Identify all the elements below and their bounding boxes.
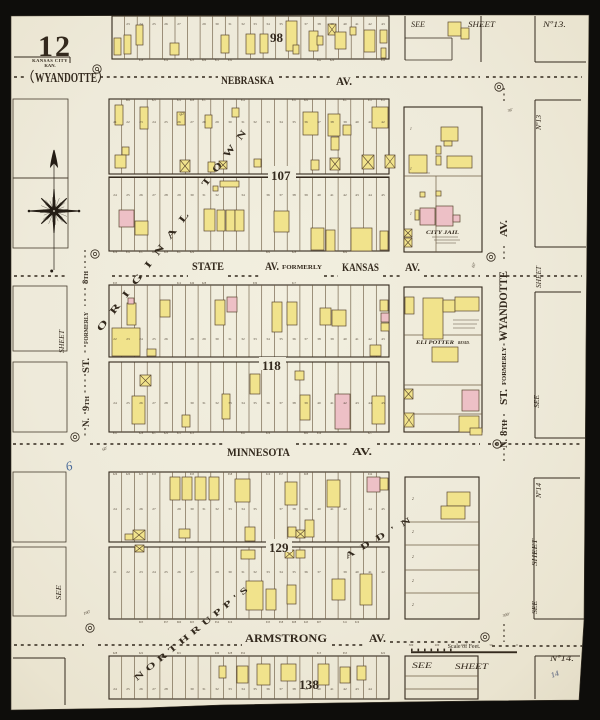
svg-text:612: 612 [215,59,220,62]
svg-text:39: 39 [330,22,334,26]
svg-text:616: 616 [113,251,118,254]
svg-text:23: 23 [139,570,143,574]
svg-text:32: 32 [215,687,219,691]
svg-text:607: 607 [152,432,157,435]
svg-text:41: 41 [330,401,334,405]
svg-text:21: 21 [113,570,117,574]
svg-text:27: 27 [152,401,156,405]
svg-text:42: 42 [343,507,347,511]
svg-text:638: 638 [139,59,144,62]
svg-text:33: 33 [228,687,232,691]
svg-text:35: 35 [279,22,283,26]
svg-text:FORMERLY: FORMERLY [84,311,90,344]
svg-text:WYANDOTTE: WYANDOTTE [35,71,97,86]
svg-text:35: 35 [279,337,283,341]
svg-text:41: 41 [330,507,334,511]
svg-text:28: 28 [164,687,168,691]
svg-text:33: 33 [253,22,257,26]
svg-text:32: 32 [215,193,219,197]
svg-text:38: 38 [317,337,321,341]
svg-text:26: 26 [177,570,181,574]
svg-text:637: 637 [202,99,207,102]
svg-text:24: 24 [113,507,117,511]
svg-text:616: 616 [228,621,233,624]
svg-text:657: 657 [279,473,284,476]
svg-text:37: 37 [317,570,321,574]
svg-text:35: 35 [253,401,257,405]
svg-text:660: 660 [126,99,131,102]
svg-text:606: 606 [202,59,207,62]
svg-text:32: 32 [253,570,257,574]
svg-text:610: 610 [177,99,182,102]
svg-text:642: 642 [317,59,322,62]
svg-text:628: 628 [139,432,144,435]
svg-text:FORMERLY: FORMERLY [282,264,322,271]
svg-text:AV.: AV. [369,631,386,645]
svg-text:21: 21 [113,120,117,124]
svg-text:AV.: AV. [352,446,372,458]
svg-text:623: 623 [190,59,195,62]
svg-text:28: 28 [164,401,168,405]
svg-text:24: 24 [113,401,117,405]
svg-text:44: 44 [368,193,372,197]
svg-text:39: 39 [304,507,308,511]
svg-text:608: 608 [292,621,297,624]
svg-text:34: 34 [241,401,245,405]
svg-text:608: 608 [304,473,309,476]
svg-text:30: 30 [190,193,194,197]
svg-text:31: 31 [241,570,245,574]
svg-text:612: 612 [177,282,182,285]
svg-text:41: 41 [368,570,372,574]
svg-text:SHEET: SHEET [534,265,543,288]
svg-text:31: 31 [202,507,206,511]
svg-text:622: 622 [381,652,386,655]
svg-text:2: 2 [412,497,414,501]
svg-text:25: 25 [126,687,130,691]
svg-text:SHEET: SHEET [57,329,66,353]
svg-text:43: 43 [355,687,359,691]
svg-text:617: 617 [292,282,297,285]
svg-text:630: 630 [215,652,220,655]
svg-text:ELI POTTER: ELI POTTER [415,341,455,346]
svg-text:100: 100 [461,643,466,647]
svg-text:40: 40 [317,507,321,511]
svg-text:27: 27 [152,193,156,197]
svg-text:AV.: AV. [265,259,279,273]
svg-text:25: 25 [152,22,156,26]
svg-text:650: 650 [381,59,386,62]
svg-text:615: 615 [177,432,182,435]
svg-text:42: 42 [343,401,347,405]
svg-text:40: 40 [355,120,359,124]
svg-text:27: 27 [152,507,156,511]
svg-text:36: 36 [304,570,308,574]
svg-text:SEE: SEE [54,585,63,600]
svg-text:626: 626 [113,473,118,476]
svg-text:40: 40 [355,570,359,574]
svg-text:645: 645 [241,432,246,435]
svg-text:44: 44 [368,687,372,691]
svg-text:31: 31 [228,337,232,341]
svg-text:24: 24 [113,687,117,691]
svg-text:633: 633 [190,473,195,476]
svg-text:SEE: SEE [412,660,433,670]
svg-text:STATE: STATE [192,259,224,273]
svg-text:2: 2 [412,555,414,559]
svg-text:KAN.: KAN. [44,63,55,68]
svg-text:36: 36 [266,193,270,197]
svg-text:26: 26 [139,401,143,405]
svg-text:26: 26 [177,120,181,124]
svg-text:635: 635 [152,473,157,476]
svg-text:623: 623 [139,473,144,476]
svg-text:29: 29 [177,507,181,511]
svg-text:611: 611 [343,621,348,624]
svg-text:23: 23 [126,337,130,341]
svg-text:620: 620 [164,432,169,435]
svg-text:ARMSTRONG: ARMSTRONG [245,631,327,645]
svg-text:30: 30 [190,687,194,691]
svg-text:40: 40 [317,401,321,405]
svg-text:30: 30 [190,401,194,405]
svg-text:43: 43 [355,401,359,405]
svg-text:138: 138 [299,677,320,692]
svg-text:AV.: AV. [499,220,510,237]
svg-text:655: 655 [368,99,373,102]
svg-text:33: 33 [266,570,270,574]
svg-text:129: 129 [269,540,289,555]
svg-text:ST.: ST. [82,358,92,373]
svg-text:609: 609 [343,251,348,254]
svg-text:25: 25 [126,507,130,511]
svg-text:50: 50 [490,643,494,647]
svg-text:27: 27 [177,22,181,26]
svg-text:35: 35 [292,120,296,124]
svg-text:28: 28 [164,193,168,197]
svg-text:656: 656 [317,432,322,435]
svg-text:39: 39 [343,120,347,124]
svg-text:25: 25 [126,401,130,405]
svg-text:25: 25 [152,337,156,341]
svg-text:628: 628 [113,652,118,655]
svg-text:SEE: SEE [411,19,426,29]
svg-text:36: 36 [266,687,270,691]
svg-text:639: 639 [253,282,258,285]
svg-text:35: 35 [253,687,257,691]
svg-text:27: 27 [190,570,194,574]
svg-text:28: 28 [190,337,194,341]
svg-text:660: 660 [304,432,309,435]
svg-text:36: 36 [292,337,296,341]
svg-text:35: 35 [292,570,296,574]
svg-text:30: 30 [190,507,194,511]
svg-text:25: 25 [164,570,168,574]
svg-text:645: 645 [304,621,309,624]
svg-text:31: 31 [202,401,206,405]
svg-text:39: 39 [304,401,308,405]
svg-text:98: 98 [270,30,284,45]
svg-text:23: 23 [139,120,143,124]
svg-text:628: 628 [292,251,297,254]
svg-text:N.: N. [81,418,91,427]
svg-text:30: 30 [215,337,219,341]
svg-text:622: 622 [139,652,144,655]
svg-text:45: 45 [381,193,385,197]
svg-text:Nº13: Nº13 [534,115,543,131]
svg-text:42: 42 [381,120,385,124]
svg-text:300: 300 [409,643,414,647]
svg-text:1: 1 [410,167,412,171]
svg-text:43: 43 [381,337,385,341]
svg-text:33: 33 [228,507,232,511]
svg-text:37: 37 [279,687,283,691]
svg-text:AV.: AV. [405,260,420,274]
svg-text:38: 38 [292,401,296,405]
svg-text:609: 609 [266,251,271,254]
svg-text:32: 32 [241,337,245,341]
svg-text:31: 31 [228,22,232,26]
svg-text:29: 29 [215,570,219,574]
svg-text:24: 24 [139,337,143,341]
svg-text:652: 652 [241,99,246,102]
svg-text:42: 42 [343,687,347,691]
svg-text:200: 200 [435,643,440,647]
svg-text:600: 600 [304,99,309,102]
svg-text:23: 23 [126,22,130,26]
svg-text:37: 37 [279,401,283,405]
svg-text:27: 27 [152,687,156,691]
svg-text:45: 45 [381,507,385,511]
svg-text:34: 34 [266,22,270,26]
svg-text:37: 37 [279,193,283,197]
svg-text:41: 41 [355,22,359,26]
svg-text:44: 44 [368,507,372,511]
svg-text:616: 616 [266,473,271,476]
svg-text:38: 38 [292,687,296,691]
svg-text:34: 34 [279,570,283,574]
svg-text:42: 42 [368,337,372,341]
svg-text:22: 22 [126,570,130,574]
svg-text:616: 616 [266,432,271,435]
svg-text:42: 42 [368,22,372,26]
svg-text:655: 655 [381,99,386,102]
svg-text:22: 22 [113,337,117,341]
svg-text:34: 34 [279,120,283,124]
svg-text:38: 38 [292,193,296,197]
svg-text:24: 24 [139,22,143,26]
svg-text:649: 649 [190,282,195,285]
svg-text:25: 25 [126,193,130,197]
svg-text:647: 647 [343,99,348,102]
svg-text:SHEET: SHEET [468,19,496,29]
svg-text:CITY JAIL: CITY JAIL [426,230,460,236]
svg-text:24: 24 [113,193,117,197]
svg-text:653: 653 [343,652,348,655]
svg-text:607: 607 [317,621,322,624]
svg-text:34: 34 [266,337,270,341]
svg-text:42: 42 [381,570,385,574]
svg-text:44: 44 [368,401,372,405]
svg-text:27: 27 [190,120,194,124]
svg-text:KANSAS: KANSAS [342,260,379,274]
svg-text:40: 40 [343,22,347,26]
svg-text:658: 658 [228,473,233,476]
svg-text:8TH: 8TH [499,419,510,436]
svg-text:30: 30 [215,22,219,26]
svg-text:625: 625 [152,99,157,102]
svg-text:45: 45 [381,401,385,405]
svg-text:41: 41 [355,337,359,341]
svg-text:28: 28 [202,120,206,124]
svg-text:29: 29 [202,22,206,26]
svg-text:33: 33 [253,337,257,341]
svg-text:32: 32 [241,22,245,26]
svg-text:652: 652 [241,652,246,655]
svg-text:Nº14.: Nº14. [549,653,574,663]
svg-text:42: 42 [343,193,347,197]
svg-text:41: 41 [368,120,372,124]
svg-text:659: 659 [164,59,169,62]
svg-text:26: 26 [164,22,168,26]
svg-text:37: 37 [304,22,308,26]
svg-text:24: 24 [152,570,156,574]
svg-text:107: 107 [271,168,291,183]
svg-text:628: 628 [228,652,233,655]
svg-text:26: 26 [139,507,143,511]
svg-text:22: 22 [126,120,130,124]
svg-text:SEE: SEE [530,601,539,614]
svg-text:658: 658 [279,621,284,624]
svg-text:43: 43 [355,193,359,197]
svg-text:30: 30 [228,120,232,124]
svg-text:637: 637 [139,251,144,254]
svg-text:34: 34 [241,687,245,691]
svg-text:39: 39 [304,193,308,197]
svg-text:36: 36 [304,120,308,124]
svg-text:RESID.: RESID. [458,341,470,345]
svg-text:654: 654 [215,621,220,624]
svg-text:624: 624 [330,59,335,62]
svg-text:26: 26 [139,687,143,691]
svg-text:26: 26 [164,337,168,341]
svg-text:SHEET: SHEET [530,538,539,566]
svg-text:628: 628 [202,282,207,285]
svg-text:31: 31 [202,193,206,197]
svg-text:41: 41 [330,687,334,691]
svg-text:630: 630 [228,59,233,62]
svg-text:FORMERLY: FORMERLY [502,346,508,385]
svg-text:41: 41 [330,193,334,197]
svg-text:635: 635 [292,99,297,102]
svg-text:608: 608 [190,99,195,102]
svg-text:ST.: ST. [499,388,510,405]
svg-text:40: 40 [317,193,321,197]
svg-text:34: 34 [241,193,245,197]
svg-text:37: 37 [304,337,308,341]
svg-text:32: 32 [253,120,257,124]
svg-text:32: 32 [215,401,219,405]
svg-text:633: 633 [113,282,118,285]
svg-text:32: 32 [215,507,219,511]
svg-text:39: 39 [330,337,334,341]
svg-text:NEBRASKA: NEBRASKA [221,73,274,87]
svg-text:627: 627 [368,432,373,435]
svg-text:647: 647 [177,251,182,254]
svg-text:1: 1 [410,212,412,216]
svg-text:43: 43 [381,22,385,26]
svg-text:29: 29 [215,120,219,124]
svg-text:613: 613 [190,432,195,435]
svg-text:36: 36 [266,401,270,405]
svg-text:635: 635 [113,432,118,435]
svg-text:603: 603 [139,621,144,624]
svg-text:35: 35 [253,507,257,511]
svg-text:Nº13.: Nº13. [542,19,566,29]
svg-text:619: 619 [355,621,360,624]
svg-text:Nº14: Nº14 [534,483,543,499]
svg-text:AV.: AV. [336,74,352,88]
svg-text:118: 118 [262,358,281,373]
svg-text:38: 38 [317,22,321,26]
svg-text:SEE: SEE [532,395,541,408]
svg-text:38: 38 [330,120,334,124]
svg-text:37: 37 [279,507,283,511]
svg-text:613: 613 [317,652,322,655]
svg-text:30: 30 [228,570,232,574]
svg-text:33: 33 [228,401,232,405]
svg-text:WYANDOTTE: WYANDOTTE [498,271,510,341]
svg-text:634: 634 [368,473,373,476]
svg-text:24: 24 [152,120,156,124]
svg-text:2: 2 [412,579,414,583]
svg-text:38: 38 [292,507,296,511]
svg-text:620: 620 [126,473,131,476]
svg-text:635: 635 [266,621,271,624]
svg-text:26: 26 [139,193,143,197]
svg-text:MINNESOTA: MINNESOTA [227,445,290,459]
svg-text:657: 657 [164,621,169,624]
svg-text:SHEET: SHEET [455,661,490,671]
svg-text:629: 629 [190,251,195,254]
svg-text:1: 1 [410,127,412,131]
svg-text:37: 37 [317,120,321,124]
svg-text:632: 632 [126,251,131,254]
svg-text:660: 660 [177,621,182,624]
svg-text:29: 29 [202,337,206,341]
svg-text:40: 40 [343,337,347,341]
svg-text:33: 33 [266,120,270,124]
svg-text:2: 2 [412,603,414,607]
svg-text:2: 2 [412,530,414,534]
svg-text:601: 601 [177,652,182,655]
svg-text:31: 31 [202,687,206,691]
svg-text:25: 25 [164,120,168,124]
svg-text:34: 34 [241,507,245,511]
svg-text:39: 39 [343,570,347,574]
svg-text:29: 29 [177,193,181,197]
